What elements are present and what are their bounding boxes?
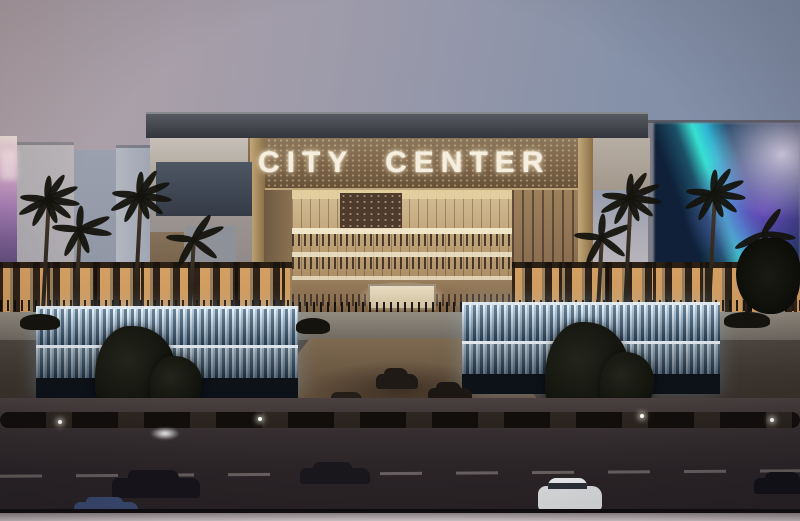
car-white xyxy=(538,486,602,510)
street-light xyxy=(58,420,62,424)
left-billboard-highlight xyxy=(0,150,17,180)
bottom-pavement-strip xyxy=(0,513,800,521)
parked-car xyxy=(376,374,418,389)
street-light xyxy=(640,414,644,418)
roadside-hedge xyxy=(0,412,800,428)
shrub xyxy=(20,314,60,330)
street-light xyxy=(258,417,262,421)
shrub xyxy=(724,312,770,328)
car-dark xyxy=(300,468,370,484)
street-light xyxy=(770,418,774,422)
right-foliage-cluster xyxy=(736,238,800,314)
shrub xyxy=(296,318,330,334)
left-wing-dark-block xyxy=(156,162,252,216)
mall-sign-text: CITY CENTER xyxy=(258,146,550,180)
fountain-cascade-upper xyxy=(36,309,298,345)
mall-sign-band: CITY CENTER xyxy=(248,138,592,190)
car-dark xyxy=(754,478,800,494)
mall-rendering-scene: CITY CENTER xyxy=(0,0,800,521)
headlight-glare xyxy=(150,427,180,440)
atrium-feature-wall xyxy=(340,193,402,229)
mall-roof-slab xyxy=(146,112,648,138)
atrium-crowd-row xyxy=(292,257,512,269)
car-dark xyxy=(112,478,200,498)
atrium-crowd-row xyxy=(292,234,512,246)
atrium-top-band xyxy=(292,190,512,199)
